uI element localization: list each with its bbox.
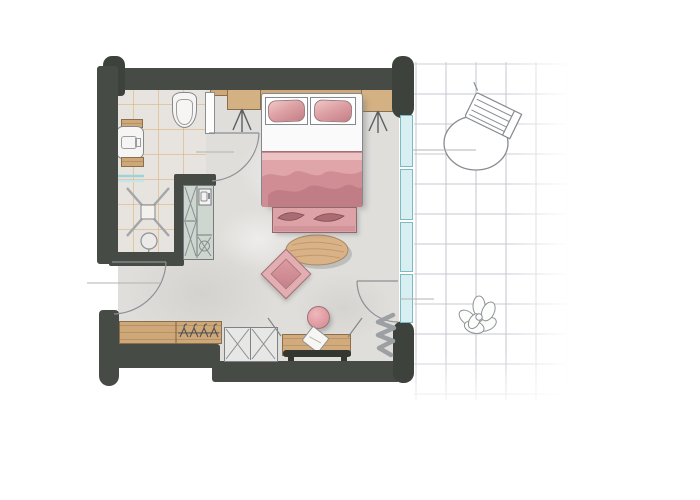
overlay-art [0, 0, 700, 500]
nightstand-legs [233, 109, 387, 133]
floor-plan-canvas [0, 0, 700, 500]
entrance-door [112, 262, 166, 314]
opening-annotations [87, 150, 476, 299]
bench-ticks [268, 318, 362, 337]
bathroom-door [209, 133, 259, 181]
